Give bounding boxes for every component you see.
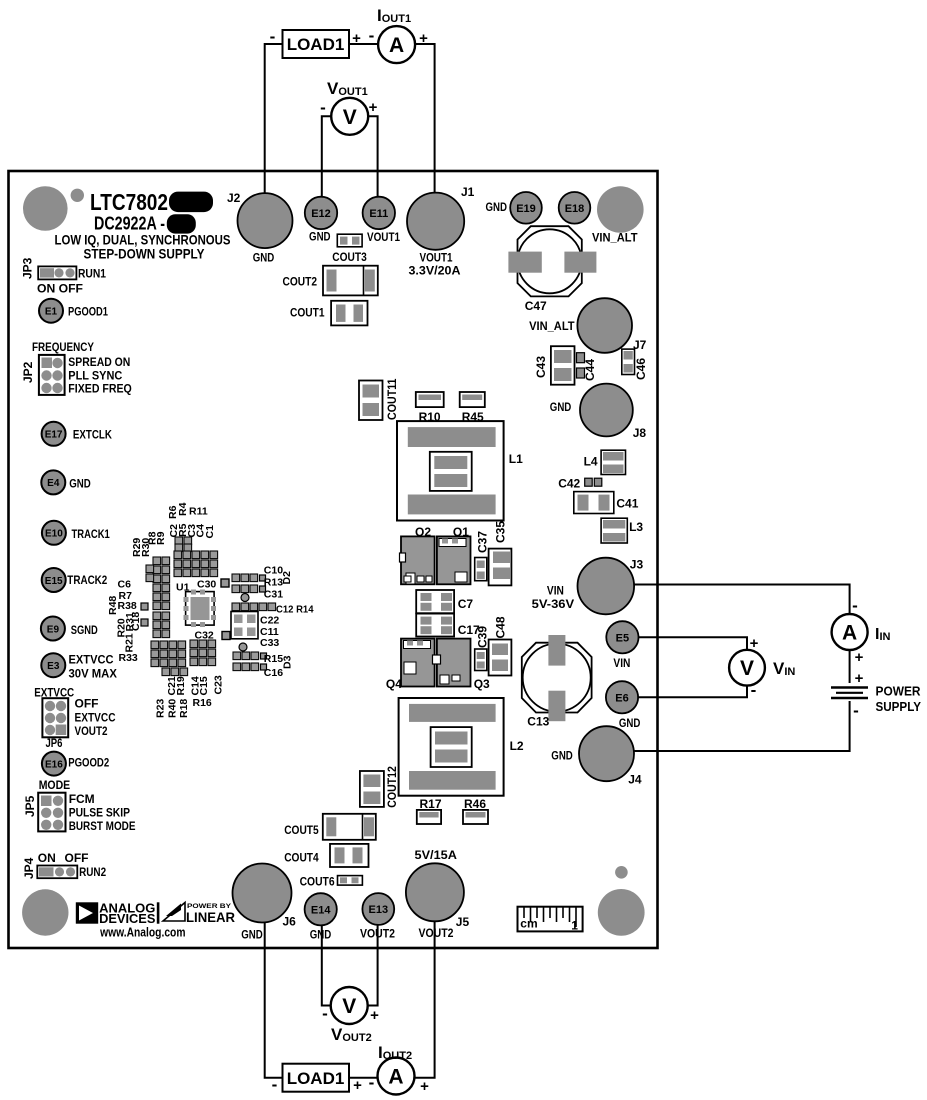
svg-text:SUPPLY: SUPPLY	[876, 700, 922, 714]
svg-text:L2: L2	[510, 739, 524, 753]
svg-text:VIN_ALT: VIN_ALT	[529, 319, 575, 333]
svg-text:E4: E4	[47, 478, 60, 489]
svg-text:J3: J3	[630, 558, 644, 572]
svg-text:VOUT1: VOUT1	[367, 230, 400, 244]
svg-text:JP2: JP2	[21, 361, 35, 383]
svg-text:COUT2: COUT2	[283, 275, 318, 289]
svg-text:R38: R38	[118, 600, 137, 612]
svg-text:PULSE SKIP: PULSE SKIP	[69, 806, 130, 820]
svg-text:R46: R46	[464, 797, 486, 811]
svg-text:1: 1	[571, 919, 578, 933]
svg-text:J2: J2	[227, 191, 241, 205]
svg-text:R23: R23	[155, 699, 167, 718]
svg-text:LINEAR: LINEAR	[186, 909, 235, 925]
svg-text:R16: R16	[193, 697, 212, 709]
svg-text:JP4: JP4	[22, 857, 36, 879]
svg-text:VOUT1: VOUT1	[327, 79, 368, 98]
svg-text:-: -	[369, 1073, 375, 1092]
svg-text:C30: C30	[197, 579, 216, 591]
svg-text:R33: R33	[119, 652, 138, 664]
svg-text:+: +	[855, 649, 864, 666]
svg-text:COUT3: COUT3	[332, 250, 367, 264]
svg-text:-: -	[270, 27, 276, 46]
svg-text:J5: J5	[456, 915, 470, 929]
svg-text:E6: E6	[615, 692, 628, 704]
svg-text:VIN_ALT: VIN_ALT	[592, 231, 638, 245]
svg-text:-: -	[853, 701, 859, 720]
svg-text:ON OFF: ON OFF	[37, 282, 83, 296]
svg-text:+: +	[369, 99, 378, 116]
svg-text:LTC7802: LTC7802	[90, 189, 168, 215]
svg-text:C46: C46	[634, 358, 648, 380]
svg-text:C31: C31	[264, 589, 283, 601]
svg-text:JP6: JP6	[46, 736, 63, 750]
svg-text:GND: GND	[69, 476, 91, 490]
svg-text:5V-36V: 5V-36V	[532, 597, 575, 611]
svg-text:E13: E13	[369, 904, 389, 916]
svg-text:VOUT2: VOUT2	[75, 724, 108, 738]
svg-text:Q3: Q3	[474, 677, 490, 691]
svg-text:EXTCLK: EXTCLK	[73, 428, 112, 442]
svg-text:COUT4: COUT4	[284, 850, 319, 864]
svg-text:C42: C42	[558, 476, 580, 490]
svg-text:Q4: Q4	[386, 677, 402, 691]
svg-text:LOAD1: LOAD1	[287, 1069, 345, 1088]
svg-text:OFF: OFF	[65, 851, 89, 865]
svg-text:E3: E3	[47, 661, 60, 672]
svg-text:GND: GND	[486, 200, 508, 214]
svg-text:OFF: OFF	[75, 696, 99, 710]
svg-text:JP3: JP3	[21, 257, 35, 279]
svg-text:R17: R17	[420, 797, 442, 811]
svg-text:D2: D2	[281, 571, 293, 585]
svg-text:C35: C35	[494, 521, 508, 543]
svg-text:+: +	[420, 1078, 429, 1095]
svg-text:PGOOD1: PGOOD1	[68, 305, 108, 319]
svg-text:VOUT2: VOUT2	[360, 927, 395, 941]
svg-text:VIN: VIN	[613, 656, 630, 670]
svg-text:IOUT1: IOUT1	[377, 6, 411, 25]
svg-text:SGND: SGND	[71, 623, 98, 637]
svg-text:VOUT1: VOUT1	[420, 251, 453, 265]
svg-text:V: V	[343, 106, 357, 129]
svg-text:D3: D3	[282, 655, 294, 669]
svg-text:E12: E12	[311, 208, 331, 220]
svg-text:LOAD1: LOAD1	[287, 35, 345, 54]
svg-text:C39: C39	[476, 626, 490, 648]
svg-text:C41: C41	[616, 496, 638, 510]
svg-text:R15: R15	[264, 653, 283, 665]
svg-text:GND: GND	[310, 927, 332, 941]
svg-text:LOW IQ, DUAL, SYNCHRONOUS: LOW IQ, DUAL, SYNCHRONOUS	[55, 233, 231, 248]
svg-text:COUT11: COUT11	[385, 378, 399, 420]
svg-text:E11: E11	[369, 208, 388, 220]
svg-text:SPREAD ON: SPREAD ON	[68, 355, 130, 369]
svg-text:5V/15A: 5V/15A	[415, 848, 458, 862]
svg-text:E1: E1	[45, 307, 58, 318]
svg-text:EXTVCC: EXTVCC	[75, 710, 116, 724]
svg-text:E18: E18	[565, 203, 585, 215]
svg-text:3.3V/20A: 3.3V/20A	[409, 264, 461, 278]
svg-text:R9: R9	[155, 531, 167, 545]
svg-text:IIN: IIN	[875, 626, 891, 643]
svg-text:-: -	[272, 1075, 278, 1094]
svg-text:E16: E16	[45, 759, 63, 770]
svg-text:-: -	[751, 681, 757, 700]
svg-text:GND: GND	[619, 716, 641, 730]
svg-text:VIN: VIN	[547, 584, 564, 598]
svg-text:TRACK1: TRACK1	[72, 527, 111, 541]
svg-text:GND: GND	[309, 230, 331, 244]
svg-text:V: V	[740, 657, 754, 680]
svg-text:J8: J8	[633, 426, 647, 440]
svg-text:C16: C16	[264, 667, 283, 679]
svg-text:TRACK2: TRACK2	[67, 573, 107, 587]
svg-text:R11: R11	[189, 506, 208, 518]
svg-text:+: +	[352, 30, 361, 47]
svg-text:C47: C47	[525, 299, 547, 313]
svg-text:FREQUENCY: FREQUENCY	[32, 340, 94, 354]
svg-text:C23: C23	[213, 675, 225, 694]
svg-text:FIXED FREQ: FIXED FREQ	[68, 382, 132, 396]
svg-text:A: A	[842, 622, 857, 645]
svg-text:+: +	[419, 30, 428, 47]
svg-text:C6: C6	[118, 579, 132, 591]
svg-text:VOUT2: VOUT2	[331, 1025, 372, 1044]
svg-text:C43: C43	[534, 356, 548, 378]
svg-text:JP5: JP5	[23, 795, 37, 817]
svg-text:R21: R21	[124, 633, 136, 652]
svg-text:COUT12: COUT12	[385, 766, 399, 808]
svg-text:E10: E10	[45, 529, 63, 540]
svg-text:A: A	[388, 1066, 403, 1089]
svg-text:V: V	[342, 995, 356, 1018]
svg-text:VIN: VIN	[773, 659, 795, 678]
svg-text:C22: C22	[260, 615, 279, 627]
svg-text:C13: C13	[527, 715, 549, 729]
svg-text:GND: GND	[253, 251, 275, 265]
svg-text:POWER: POWER	[876, 685, 921, 699]
svg-text:RUN2: RUN2	[79, 865, 106, 879]
svg-text:+: +	[353, 1077, 362, 1094]
svg-text:-: -	[322, 1004, 328, 1023]
svg-text:GND: GND	[241, 928, 263, 942]
svg-text:PGOOD2: PGOOD2	[68, 755, 109, 769]
svg-text:J6: J6	[283, 914, 297, 928]
svg-text:E14: E14	[311, 904, 331, 916]
svg-text:R4: R4	[177, 502, 189, 516]
svg-text:C1: C1	[204, 525, 216, 539]
svg-text:GND: GND	[550, 400, 572, 414]
svg-text:+: +	[750, 635, 759, 652]
svg-text:L1: L1	[509, 452, 523, 466]
svg-text:C32: C32	[195, 630, 214, 642]
svg-text:C18: C18	[130, 612, 142, 631]
svg-text:J4: J4	[628, 772, 642, 786]
svg-text:-: -	[369, 26, 375, 45]
svg-text:PLL SYNC: PLL SYNC	[68, 369, 122, 383]
svg-text:C37: C37	[476, 531, 490, 553]
svg-text:C48: C48	[494, 616, 508, 638]
svg-text:J1: J1	[461, 185, 475, 199]
svg-text:COUT6: COUT6	[300, 875, 335, 889]
svg-text:-: -	[320, 98, 326, 117]
svg-text:STEP-DOWN SUPPLY: STEP-DOWN SUPPLY	[84, 247, 205, 262]
svg-text:RUN1: RUN1	[78, 267, 106, 281]
svg-text:BURST MODE: BURST MODE	[69, 819, 136, 833]
svg-text:VOUT2: VOUT2	[419, 926, 454, 940]
svg-text:L3: L3	[629, 520, 643, 534]
svg-text:E5: E5	[616, 632, 629, 644]
svg-text:GND: GND	[551, 748, 573, 762]
svg-text:COUT1: COUT1	[290, 306, 325, 320]
svg-text:U1: U1	[176, 582, 190, 594]
svg-text:C15: C15	[198, 676, 210, 695]
svg-text:E19: E19	[516, 203, 536, 215]
svg-text:+: +	[855, 670, 864, 687]
svg-text:www.Analog.com: www.Analog.com	[99, 925, 185, 940]
svg-text:ON: ON	[38, 851, 56, 865]
svg-text:C33: C33	[260, 637, 279, 649]
svg-text:COUT5: COUT5	[284, 823, 319, 837]
svg-text:R19: R19	[175, 676, 187, 695]
svg-text:R18: R18	[178, 699, 190, 718]
svg-text:L4: L4	[584, 455, 598, 469]
svg-text:-: -	[852, 596, 858, 615]
svg-text:R40: R40	[167, 699, 179, 718]
svg-text:FCM: FCM	[69, 792, 95, 806]
svg-text:cm: cm	[520, 917, 537, 931]
svg-text:C44: C44	[583, 359, 597, 381]
svg-text:EXTVCC: EXTVCC	[69, 652, 114, 666]
svg-text:IOUT2: IOUT2	[378, 1043, 412, 1062]
svg-text:DC2922A -: DC2922A -	[94, 214, 165, 234]
svg-text:+: +	[370, 1007, 379, 1024]
svg-text:E15: E15	[45, 576, 63, 587]
svg-text:R30: R30	[140, 538, 152, 557]
svg-text:MODE: MODE	[39, 778, 70, 792]
svg-text:R48: R48	[107, 596, 119, 615]
svg-text:A: A	[389, 34, 404, 57]
svg-text:30V MAX: 30V MAX	[69, 667, 117, 681]
svg-text:C12 R14: C12 R14	[276, 604, 314, 616]
svg-text:C7: C7	[458, 597, 474, 611]
svg-text:E17: E17	[45, 430, 63, 441]
svg-text:E9: E9	[47, 624, 60, 635]
